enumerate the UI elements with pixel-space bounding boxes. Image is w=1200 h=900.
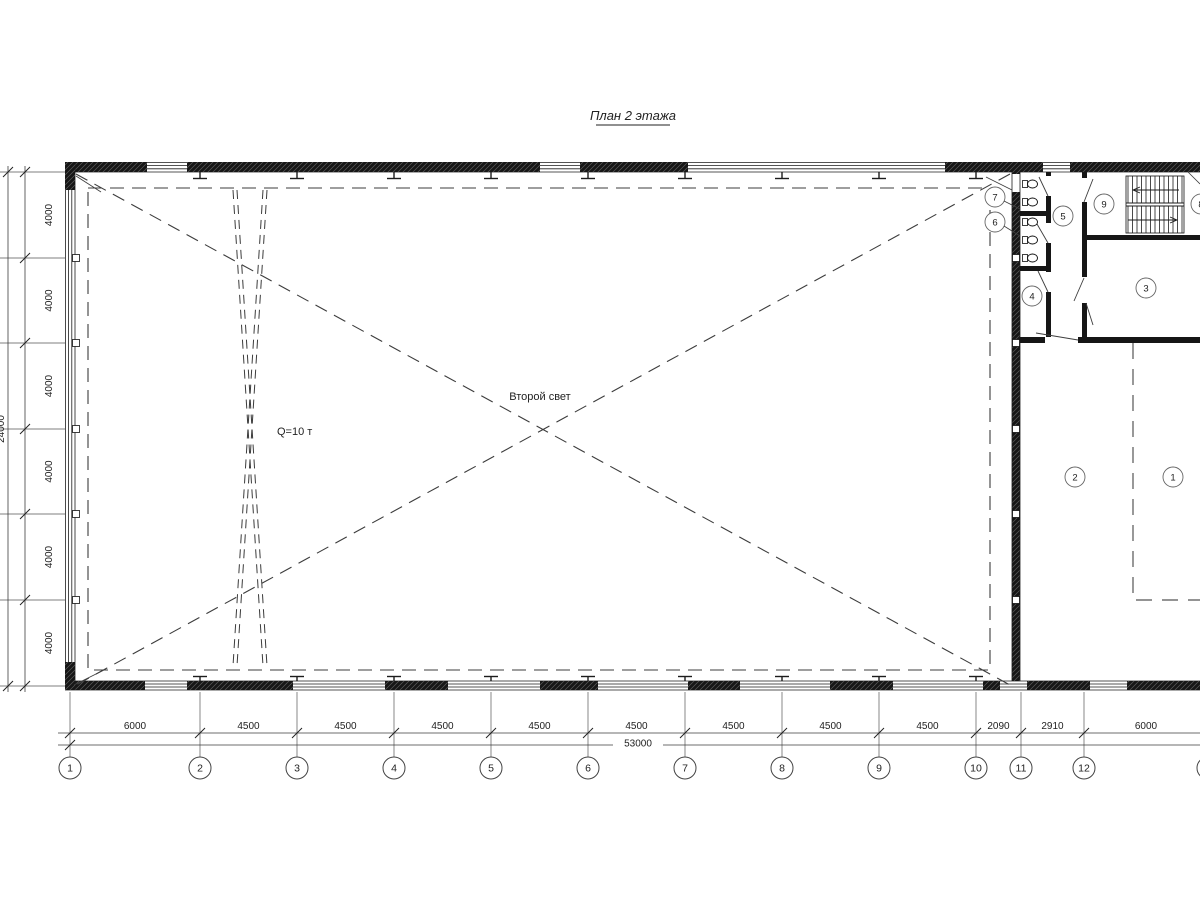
column-square-left [73,426,80,433]
door-leaf [1084,179,1093,202]
second-light-label: Второй свет [509,391,570,403]
room-number: 3 [1143,283,1148,294]
dim-label-bottom: 2910 [1041,721,1064,732]
dim-label-bottom: 4500 [916,721,939,732]
grid-bubble-number: 3 [294,763,300,775]
dim-label-bottom: 4500 [625,721,648,732]
grid-bubble-number: 11 [1016,763,1027,775]
wc-fixture-bowl [1028,236,1038,244]
bottom-wall-segment [540,681,598,690]
dim-label-bottom: 4500 [722,721,745,732]
column-square-left [73,511,80,518]
dim-label-left: 4000 [44,460,55,483]
dim-label-left-total: 24000 [0,415,7,443]
grid-bubble-number: 1 [67,763,73,775]
grid-bubble-number: 6 [585,763,591,775]
column-square-right [1013,511,1020,518]
partition-wall [1046,196,1051,223]
partition-wall [1082,303,1087,337]
wc-fixture-tank [1023,199,1028,206]
room-number: 9 [1101,199,1106,210]
dim-label-bottom: 2090 [987,721,1010,732]
top-wall-segment [945,162,1043,172]
wc-fixture-bowl [1028,198,1038,206]
dim-label-total: 53000 [624,739,652,750]
top-wall-segment [1070,162,1200,172]
partition-wall [1020,211,1046,216]
left-wall-corner-segment [65,662,75,690]
room-number: 1 [1170,472,1175,483]
top-wall-segment [187,162,540,172]
floor-plan-svg: 6000450045004500450045004500450045002090… [0,0,1200,900]
room-number: 4 [1029,291,1034,302]
partition-wall [1082,235,1200,240]
corner-leader-topleft [76,176,101,192]
room-number: 5 [1060,211,1065,222]
bottom-wall-segment [830,681,893,690]
left-wall-corner-segment [65,162,75,190]
column-square-right [1013,255,1020,262]
partition-wall [1020,337,1045,343]
top-wall-segment [580,162,688,172]
grid-bubble-number: 7 [682,763,688,775]
grid-bubble-number: 9 [876,763,882,775]
dim-label-left: 4000 [44,545,55,568]
bottom-wall-segment [65,681,145,690]
page-title: План 2 этажа [590,108,676,123]
dim-label-left: 4000 [44,631,55,654]
void-dashed-rect [88,188,990,670]
partition-wall [1046,243,1051,272]
grid-bubble-number: 8 [779,763,785,775]
column-square-right [1013,597,1020,604]
wc-fixture-bowl [1028,180,1038,188]
bottom-wall-segment [983,681,1000,690]
column-square-right [1013,426,1020,433]
dim-label-bottom: 4500 [528,721,551,732]
door-leaf [1039,177,1048,196]
hall-right-wall [1012,172,1020,174]
partition-wall [1046,172,1051,176]
room-number: 6 [992,217,997,228]
dim-label-left: 4000 [44,374,55,397]
top-wall-segment [65,162,147,172]
bottom-wall-segment [1127,681,1200,690]
dim-label-bottom: 4500 [431,721,454,732]
door-leaf [1074,278,1084,301]
grid-bubble-number: 4 [391,763,397,775]
wc-fixture-tank [1023,219,1028,226]
grid-bubble-number: 2 [197,763,203,775]
dim-label-bottom: 4500 [819,721,842,732]
door-leaf [1037,224,1048,243]
drawing-canvas: { "title": "План 2 этажа", "labels": { "… [0,0,1200,900]
bottom-wall-segment [1027,681,1090,690]
column-square-left [73,597,80,604]
wc-fixture-tank [1023,237,1028,244]
grid-bubble-number: 5 [488,763,494,775]
corner-leader-topright [1188,172,1200,184]
column-square-left [73,255,80,262]
partition-wall [1078,337,1200,343]
partition-wall [1046,292,1051,337]
grid-bubble-number: 10 [970,763,982,775]
dim-label-bottom: 4500 [334,721,357,732]
dim-label-bottom: 4500 [237,721,260,732]
room-number: 7 [992,192,997,203]
dim-label-left: 4000 [44,289,55,312]
column-square-right [1013,340,1020,347]
bottom-wall-segment [385,681,448,690]
dim-label-bottom: 6000 [1135,721,1158,732]
wc-fixture-tank [1023,255,1028,262]
column-square-left [73,340,80,347]
bottom-wall-segment [688,681,740,690]
dim-label-bottom: 6000 [124,721,147,732]
door-leaf [1086,303,1093,325]
room-number: 2 [1072,472,1077,483]
bottom-wall-segment [187,681,293,690]
partition-wall [1082,172,1087,178]
wc-fixture-tank [1023,181,1028,188]
dim-label-left: 4000 [44,203,55,226]
crane-capacity-label: Q=10 т [277,426,312,438]
hall-right-wall [1012,192,1020,681]
wc-fixture-bowl [1028,218,1038,226]
partition-wall [1020,266,1046,271]
grid-bubble-number: 12 [1078,763,1090,775]
wc-fixture-bowl [1028,254,1038,262]
